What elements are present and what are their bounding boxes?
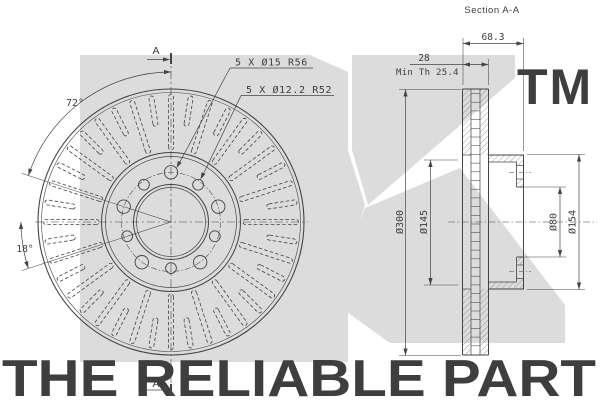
small-hole-callout: 5 X Ø12.2 R52 <box>246 84 332 96</box>
large-hole-callout: 5 X Ø15 R56 <box>235 57 308 69</box>
section-marker-bottom-label: A <box>152 378 159 390</box>
nk-letter-n-block <box>80 55 365 362</box>
outer-diameter-dim: Ø300 <box>394 210 406 234</box>
slogan-watermark: THE RELIABLE PART <box>2 350 596 400</box>
hub-diameter-dim: Ø154 <box>567 210 579 234</box>
total-width-dim: 68.3 <box>482 32 505 43</box>
nk-logo-watermark: TM THE RELIABLE PART <box>2 55 596 400</box>
disc-thickness-dim: 28 <box>418 53 430 64</box>
drawing-canvas: TM THE RELIABLE PART 5 X Ø15 R56 5 X Ø12… <box>0 0 600 400</box>
section-title: Section A-A <box>464 5 519 16</box>
section-marker-top-label: A <box>152 45 159 57</box>
bolt-pattern-angle-label: 72° <box>66 98 84 109</box>
bore-diameter-dim: Ø80 <box>548 213 560 231</box>
vane-angle-label: 18° <box>16 244 33 255</box>
brake-disc-technical-drawing: TM THE RELIABLE PART 5 X Ø15 R56 5 X Ø12… <box>0 0 600 400</box>
trademark-symbol: TM <box>517 59 593 115</box>
min-thickness-note: Min Th 25.4 <box>396 68 459 78</box>
inner-diameter-dim: Ø145 <box>418 210 430 234</box>
